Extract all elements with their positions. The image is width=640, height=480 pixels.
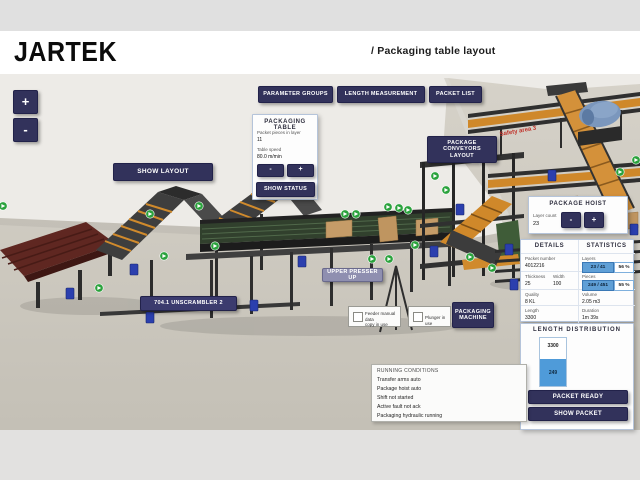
details-title: DETAILS [521,243,578,249]
layer-decrease-button[interactable]: - [561,212,581,228]
packaging-table-panel: PACKAGING TABLE Packet pieces in layer 1… [252,114,318,200]
table-speed-label: Table speed [257,147,281,152]
feeder-manual-checkbox[interactable] [353,312,363,322]
running-condition-item: Shift not started [377,395,413,401]
package-hoist-panel: PACKAGE HOIST Layer count 23 - + [528,196,628,234]
unscrambler-button[interactable]: 704.1 UNSCRAMBLER 2 [140,296,237,311]
motor-indicator [130,264,138,275]
length-distribution-title: LENGTH DISTRIBUTION [521,327,633,333]
motor-indicator [430,246,438,257]
parameter-groups-button[interactable]: PARAMETER GROUPS [258,86,333,103]
package-hoist-title: PACKAGE HOIST [529,201,627,207]
statistics-title: STATISTICS [578,243,635,249]
layers-label: Layers [582,256,596,261]
length-bar-length-label: 3300 [540,343,566,349]
status-marker-icon[interactable] [95,284,103,292]
motor-indicator [505,244,513,255]
quality-label: Quality [525,292,539,297]
feeder-manual-label-line2: copy in use [365,322,400,328]
packet-pieces-value: 11 [257,137,262,143]
duration-value: 1m 39s [582,315,598,321]
motor-indicator [66,288,74,299]
running-condition-item: Packaging hydraulic running [377,413,442,419]
pieces-label: Pieces [582,274,596,279]
running-condition-item: Transfer arms auto [377,377,421,383]
length-distribution-panel: LENGTH DISTRIBUTION 3300 249 PACKET READ… [520,323,634,430]
details-statistics-panel: DETAILS STATISTICS Packet number 4012216… [520,239,634,322]
layers-percent: 56 % [614,262,634,273]
packet-pieces-label: Packet pieces in layer [257,130,301,135]
status-marker-icon[interactable] [195,202,203,210]
status-marker-icon[interactable] [404,206,412,214]
status-marker-icon[interactable] [616,168,624,176]
length-bar-count-label: 249 [540,359,566,386]
status-marker-icon[interactable] [431,172,439,180]
motor-indicator [630,224,638,235]
status-marker-icon[interactable] [442,186,450,194]
layer-count-label: Layer count [533,213,557,218]
packet-ready-button[interactable]: PACKET READY [528,390,628,404]
feeder-manual-box: Feeder manual data copy in use [348,306,401,327]
package-conveyors-layout-line1: PACKAGE CONVEYORS [428,140,496,153]
status-marker-icon[interactable] [384,203,392,211]
package-conveyors-layout-line2: LAYOUT [450,153,474,159]
pieces-value: 249 / 451 [582,280,614,291]
motor-indicator [146,312,154,323]
table-speed-value: 80.0 m/min [257,154,282,160]
status-marker-icon[interactable] [160,252,168,260]
length-bar: 3300 249 [539,337,567,387]
motor-indicator [548,170,556,181]
jartek-logo: JARTEK [14,37,117,69]
top-strip [0,0,640,31]
status-marker-icon[interactable] [411,241,419,249]
feeder-manual-label-line1: Feeder manual data [365,311,400,322]
length-measurement-button[interactable]: LENGTH MEASUREMENT [337,86,425,103]
motor-indicator [298,256,306,267]
motor-indicator [250,300,258,311]
pieces-increase-button[interactable]: + [287,164,314,177]
plunger-label: Plunger in use [425,315,450,326]
volume-label: Volume [582,292,597,297]
packaging-machine-button[interactable]: PACKAGING MACHINE [452,302,494,328]
zoom-in-button[interactable]: + [13,90,38,114]
layer-increase-button[interactable]: + [584,212,604,228]
status-marker-icon[interactable] [0,202,7,210]
app-window: JARTEK / Packaging table layout [0,0,640,480]
layer-count-value: 23 [533,221,539,227]
page-title: / Packaging table layout [371,45,495,57]
running-conditions-box: RUNNING CONDITIONS Transfer arms auto Pa… [371,364,527,422]
pieces-percent: 55 % [614,280,634,291]
running-conditions-title: RUNNING CONDITIONS [377,368,439,374]
packet-number-label: Packet number [525,256,555,261]
thickness-label: Thickness [525,274,545,279]
status-marker-icon[interactable] [395,204,403,212]
status-marker-icon[interactable] [488,264,496,272]
width-label: Width [553,274,565,279]
status-marker-icon[interactable] [632,156,640,164]
show-packet-button[interactable]: SHOW PACKET [528,407,628,421]
packet-list-button[interactable]: PACKET LIST [429,86,482,103]
motor-indicator [510,279,518,290]
running-condition-item: Active fault not ack [377,404,421,410]
length-label: Length [525,308,539,313]
zoom-out-button[interactable]: - [13,118,38,142]
status-marker-icon[interactable] [466,253,474,261]
status-marker-icon[interactable] [385,255,393,263]
running-condition-item: Package hoist auto [377,386,421,392]
plunger-checkbox[interactable] [413,312,423,322]
duration-label: Duration [582,308,599,313]
show-layout-button[interactable]: SHOW LAYOUT [113,163,213,181]
upper-presser-up-button[interactable]: UPPER PRESSER UP [322,268,383,282]
status-marker-icon[interactable] [146,210,154,218]
package-conveyors-layout-button[interactable]: PACKAGE CONVEYORS LAYOUT [427,136,497,163]
packaging-machine-line2: MACHINE [459,315,487,321]
status-marker-icon[interactable] [211,242,219,250]
plunger-box: Plunger in use [408,306,451,327]
length-value: 3300 [525,315,536,321]
quality-value: 8 KL [525,299,535,305]
volume-value: 2.05 m3 [582,299,600,305]
thickness-value: 25 [525,281,531,287]
width-value: 100 [553,281,561,287]
show-status-button[interactable]: SHOW STATUS [256,182,315,197]
packet-number-value: 4012216 [525,263,544,269]
status-marker-icon[interactable] [341,210,349,218]
status-marker-icon[interactable] [368,255,376,263]
pieces-decrease-button[interactable]: - [257,164,284,177]
layers-value: 23 / 41 [582,262,614,273]
bottom-strip [0,430,640,480]
status-marker-icon[interactable] [352,210,360,218]
motor-indicator [456,204,464,215]
